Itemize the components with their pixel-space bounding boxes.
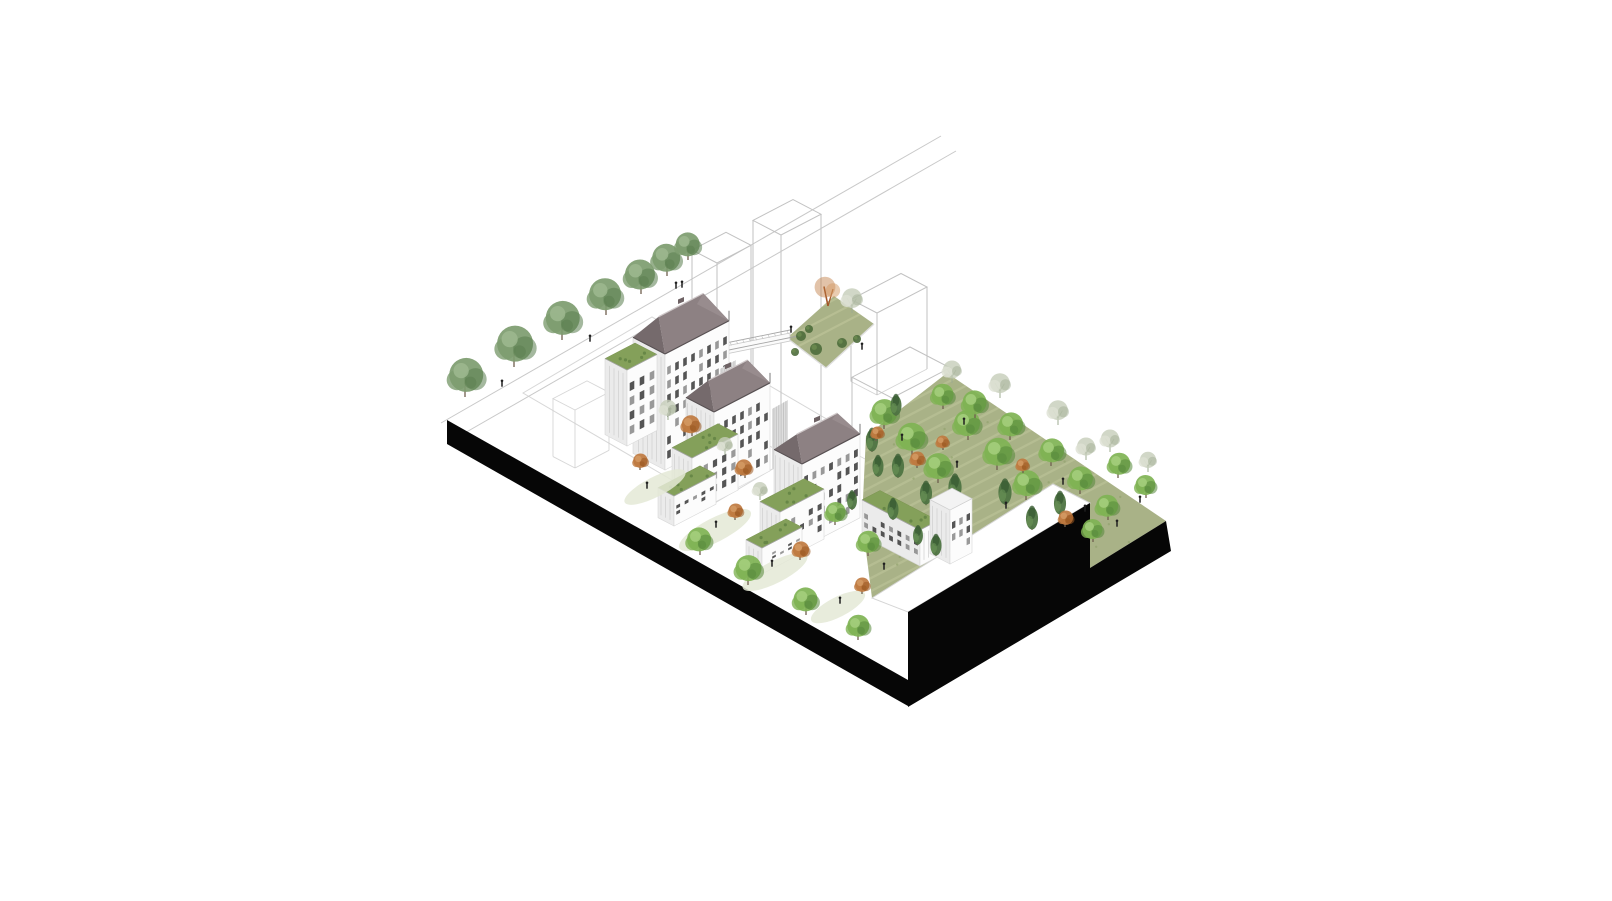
- tree-pale: [1076, 438, 1097, 461]
- tree-pale: [988, 373, 1011, 398]
- tree-pale: [1100, 430, 1121, 453]
- human-figure: [790, 326, 793, 333]
- human-figure: [861, 343, 864, 350]
- tree-deciduous: [1107, 453, 1133, 478]
- tree-deciduous: [846, 615, 872, 640]
- tree-pale: [1139, 452, 1157, 472]
- tree-deciduous: [494, 326, 536, 367]
- tree-deciduous: [447, 358, 487, 397]
- human-figure: [1139, 496, 1142, 503]
- tree-pale: [752, 482, 768, 500]
- tree-pale: [1046, 400, 1069, 425]
- tree-deciduous: [543, 301, 583, 340]
- building-b1-wing: [605, 343, 657, 446]
- architectural-axonometric-rendering: [0, 0, 1612, 901]
- human-figure: [501, 380, 504, 387]
- site-axonometric-svg: [0, 0, 1612, 901]
- chimney: [814, 416, 820, 423]
- tree-deciduous: [1134, 475, 1158, 498]
- tree-deciduous: [587, 278, 625, 315]
- rooftop-lawn-park: [770, 237, 900, 368]
- chimney: [678, 297, 684, 304]
